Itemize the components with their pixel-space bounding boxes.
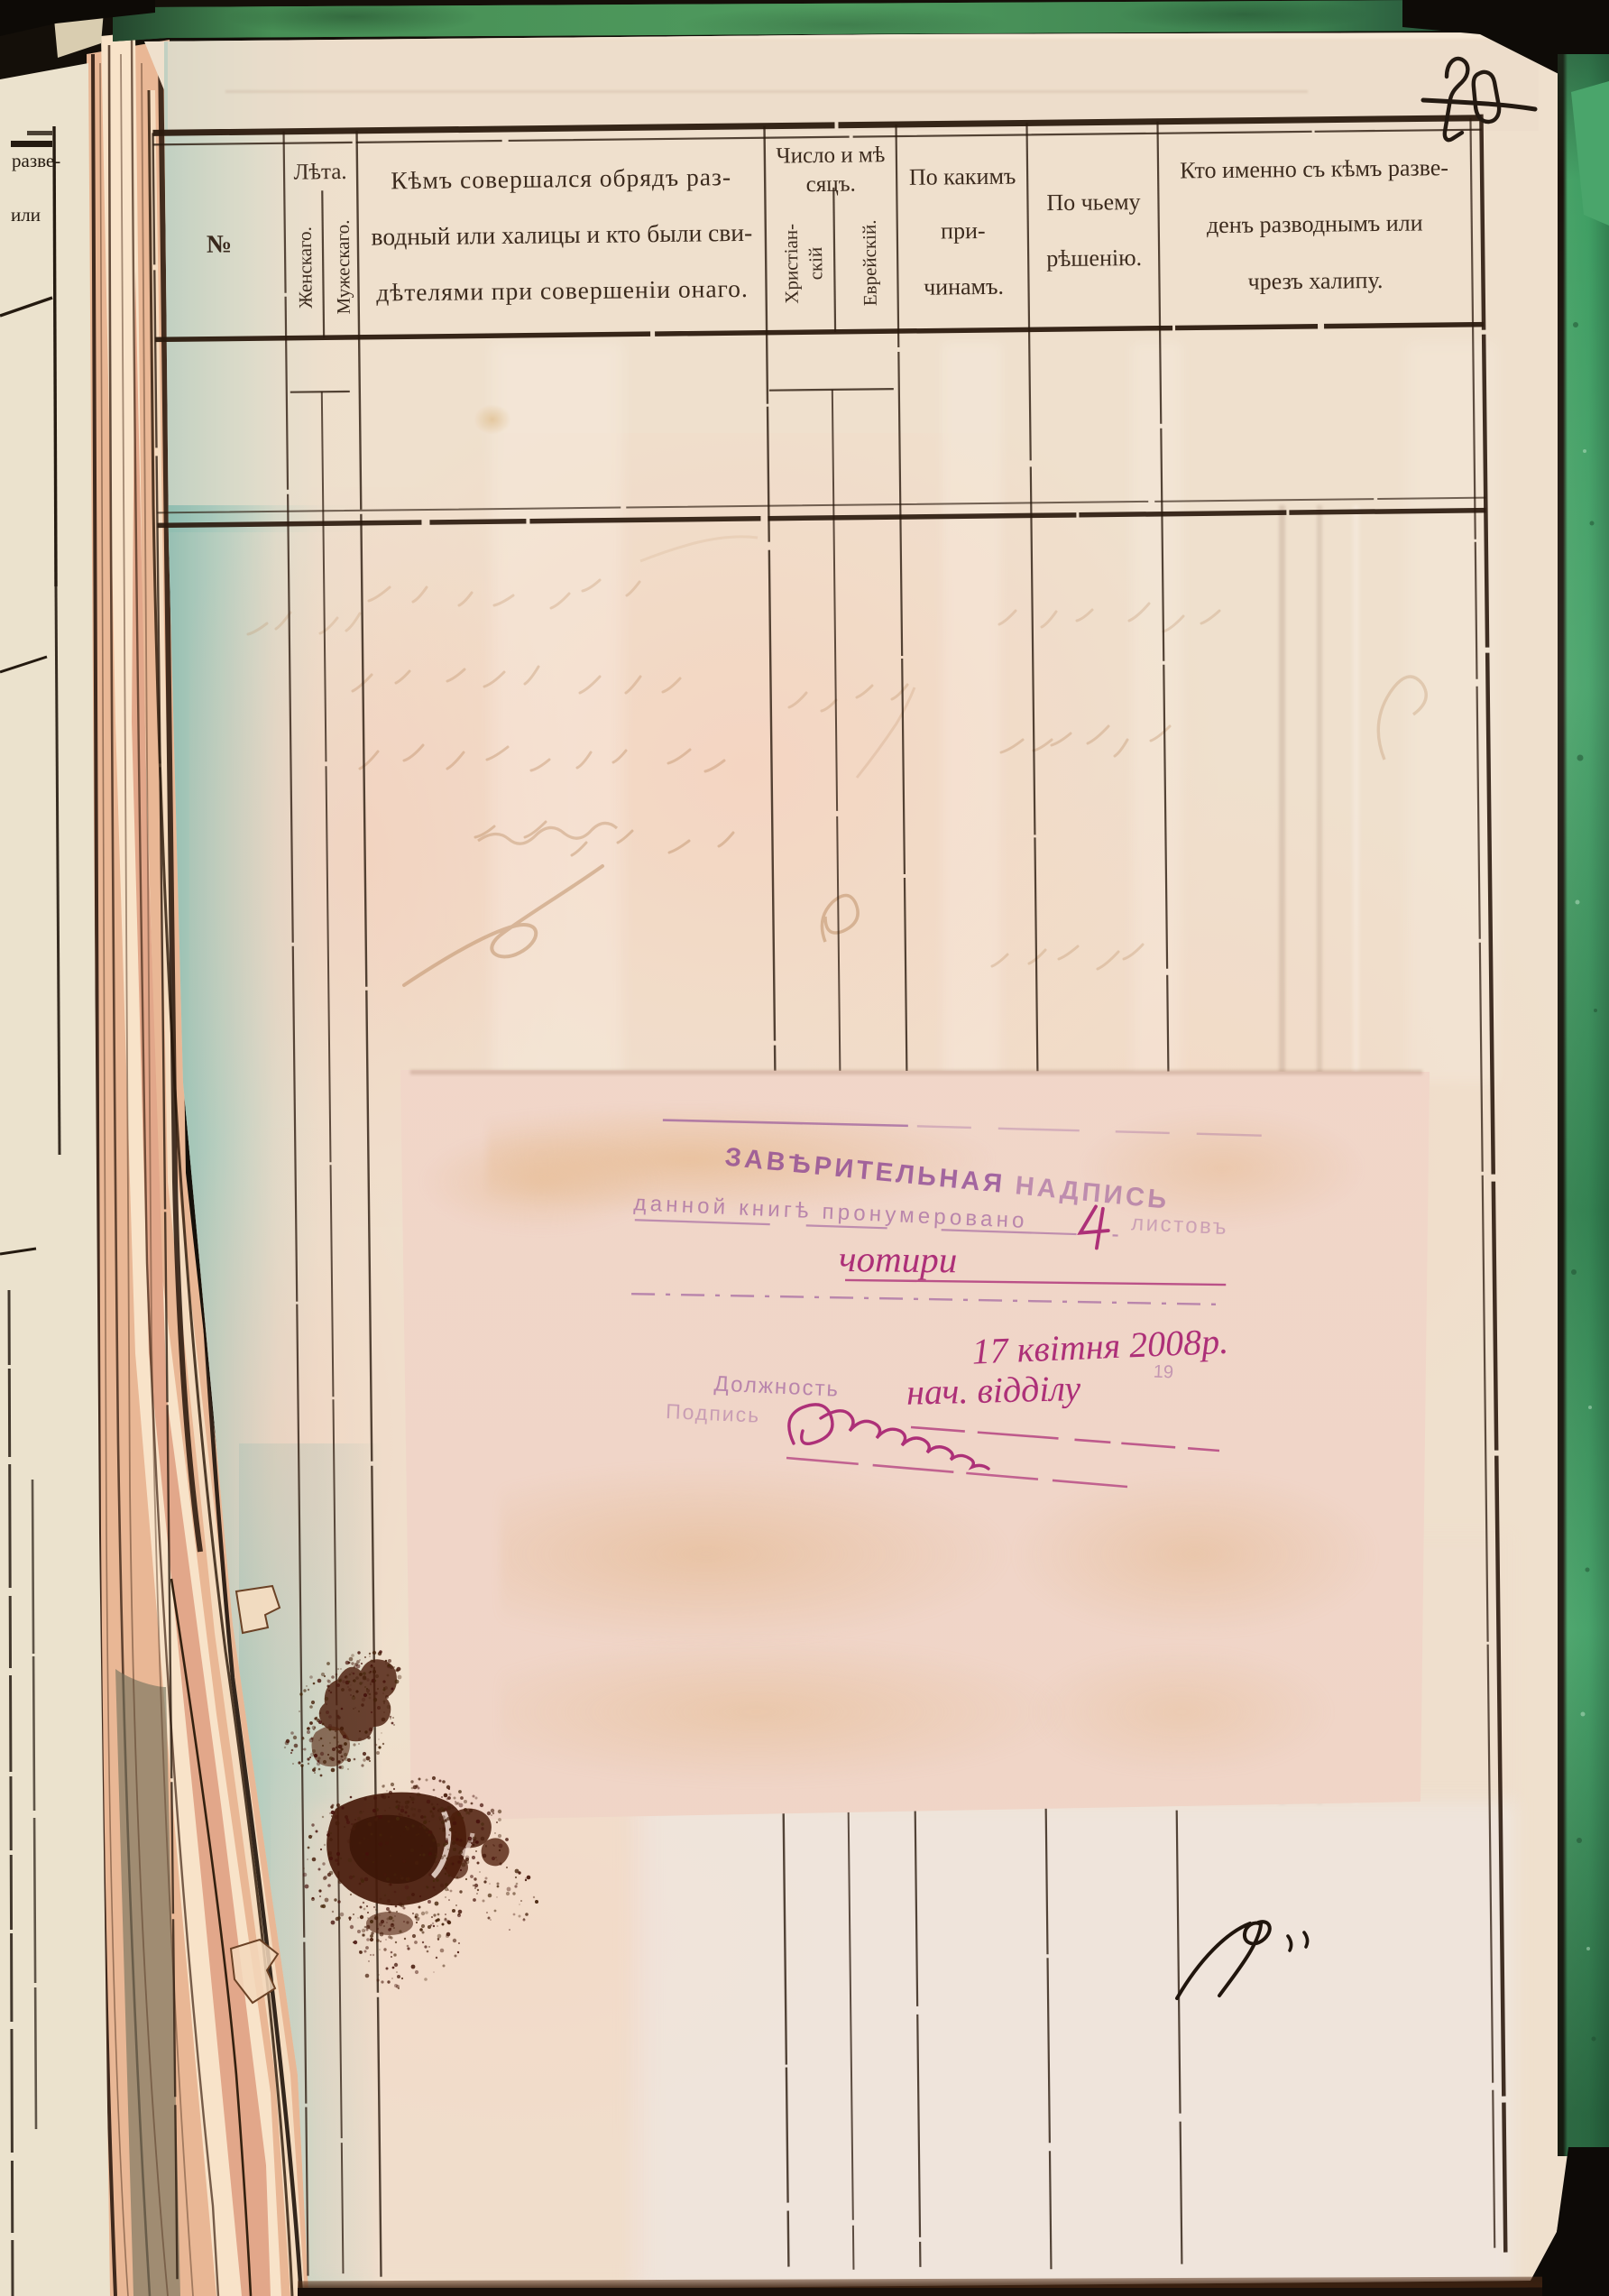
svg-text:Должность: Должность: [713, 1371, 841, 1401]
svg-text:чотири: чотири: [839, 1238, 958, 1280]
svg-text:Подпись: Подпись: [666, 1399, 761, 1427]
svg-text:листовъ: листовъ: [1131, 1211, 1229, 1240]
svg-text:нач. відділу: нач. відділу: [906, 1368, 1080, 1413]
svg-text:17 квітня 2008р.: 17 квітня 2008р.: [971, 1321, 1229, 1372]
svg-text:19: 19: [1153, 1362, 1173, 1383]
